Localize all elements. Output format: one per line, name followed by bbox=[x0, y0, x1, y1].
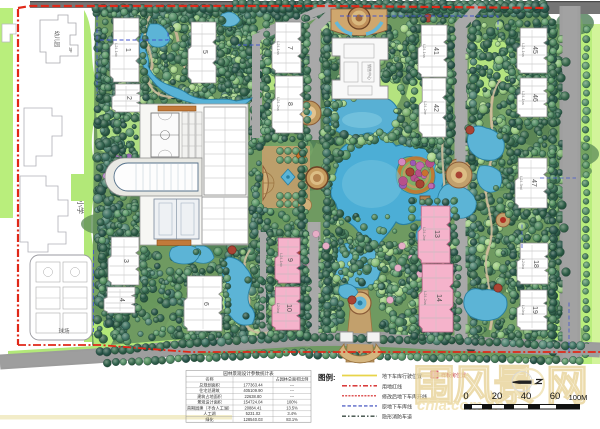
svg-text:20: 20 bbox=[492, 391, 503, 402]
svg-text:L24na: L24na bbox=[521, 305, 525, 315]
svg-text:10: 10 bbox=[285, 304, 292, 312]
svg-text:42: 42 bbox=[432, 104, 439, 112]
svg-text:景观设计面积: 景观设计面积 bbox=[197, 399, 222, 405]
svg-text:L24-1na: L24-1na bbox=[521, 91, 525, 104]
svg-text:L24-2na: L24-2na bbox=[276, 97, 280, 110]
svg-text:45: 45 bbox=[531, 46, 538, 54]
svg-text:19: 19 bbox=[531, 306, 538, 314]
svg-text:0: 0 bbox=[463, 391, 468, 402]
svg-text:3.4%: 3.4% bbox=[287, 411, 297, 416]
svg-text:6: 6 bbox=[202, 302, 209, 306]
svg-text:47: 47 bbox=[530, 179, 537, 187]
svg-text:60: 60 bbox=[550, 391, 561, 402]
svg-text:5231.02: 5231.02 bbox=[246, 411, 262, 416]
svg-text:5: 5 bbox=[201, 50, 208, 54]
svg-text:100%: 100% bbox=[287, 400, 298, 405]
svg-text:L24na: L24na bbox=[276, 303, 280, 313]
svg-text:22638.80: 22638.80 bbox=[244, 394, 262, 399]
svg-text:---: --- bbox=[290, 382, 295, 387]
svg-text:L24-1na: L24-1na bbox=[276, 41, 280, 54]
svg-text:128540.03: 128540.03 bbox=[243, 417, 263, 422]
svg-text:41: 41 bbox=[432, 47, 439, 55]
svg-text:83.1%: 83.1% bbox=[286, 417, 298, 422]
svg-text:100M: 100M bbox=[569, 393, 588, 402]
svg-text:L24-1nb: L24-1nb bbox=[279, 253, 283, 266]
svg-text:14: 14 bbox=[435, 294, 442, 302]
svg-text:小学: 小学 bbox=[76, 200, 85, 214]
svg-text:154724.04: 154724.04 bbox=[243, 400, 263, 405]
svg-text:---: --- bbox=[290, 394, 295, 399]
svg-text:首期园建（不含人工湖）: 首期园建（不含人工湖） bbox=[187, 404, 232, 410]
svg-text:L24-3nd: L24-3nd bbox=[519, 176, 523, 189]
svg-text:球场: 球场 bbox=[58, 327, 70, 335]
svg-text:名称: 名称 bbox=[205, 376, 213, 382]
svg-text:4: 4 bbox=[118, 298, 125, 302]
svg-text:住宅总建筑: 住宅总建筑 bbox=[199, 387, 219, 393]
svg-text:图例:: 图例: bbox=[318, 372, 336, 382]
svg-text:405109.90: 405109.90 bbox=[243, 388, 263, 393]
svg-text:L24-2na: L24-2na bbox=[423, 291, 427, 304]
svg-text:46: 46 bbox=[531, 94, 538, 102]
svg-text:L24-2ne: L24-2ne bbox=[423, 101, 427, 114]
svg-text:177363.44: 177363.44 bbox=[243, 382, 263, 387]
svg-text:L24-1nb: L24-1nb bbox=[114, 43, 118, 56]
svg-text:20884.41: 20884.41 bbox=[244, 405, 262, 410]
svg-text:3: 3 bbox=[122, 259, 129, 263]
svg-text:原地下车库线: 原地下车库线 bbox=[382, 403, 412, 410]
svg-text:幼儿园: 幼儿园 bbox=[53, 31, 61, 48]
svg-text:13.5%: 13.5% bbox=[286, 405, 298, 410]
svg-text:1: 1 bbox=[124, 48, 131, 52]
svg-text:13: 13 bbox=[433, 230, 440, 238]
svg-text:8: 8 bbox=[286, 102, 293, 106]
svg-text:9: 9 bbox=[286, 258, 293, 262]
svg-text:---: --- bbox=[290, 388, 295, 393]
svg-text:40: 40 bbox=[521, 391, 532, 402]
svg-text:2: 2 bbox=[125, 96, 132, 100]
svg-text:L24-2ne: L24-2ne bbox=[422, 227, 426, 240]
svg-text:3F: 3F bbox=[68, 47, 73, 53]
svg-text:18: 18 bbox=[532, 260, 539, 268]
svg-text:销售中心: 销售中心 bbox=[367, 64, 373, 80]
svg-text:7: 7 bbox=[286, 46, 293, 50]
svg-text:隐形消防车道: 隐形消防车道 bbox=[382, 414, 412, 421]
svg-text:用地红线: 用地红线 bbox=[382, 383, 402, 390]
svg-text:L24na: L24na bbox=[521, 259, 525, 269]
svg-text:建筑占地面积: 建筑占地面积 bbox=[197, 393, 222, 399]
svg-text:园林景观设计参数统计表: 园林景观设计参数统计表 bbox=[223, 370, 274, 377]
svg-text:L24-1na: L24-1na bbox=[422, 44, 426, 57]
svg-text:人工湖: 人工湖 bbox=[203, 410, 215, 416]
svg-text:绿化: 绿化 bbox=[205, 416, 213, 422]
svg-text:L24-1na: L24-1na bbox=[521, 43, 525, 56]
svg-text:占园林总面积比例: 占园林总面积比例 bbox=[276, 376, 309, 382]
svg-text:总规划面积: 总规划面积 bbox=[199, 381, 219, 387]
